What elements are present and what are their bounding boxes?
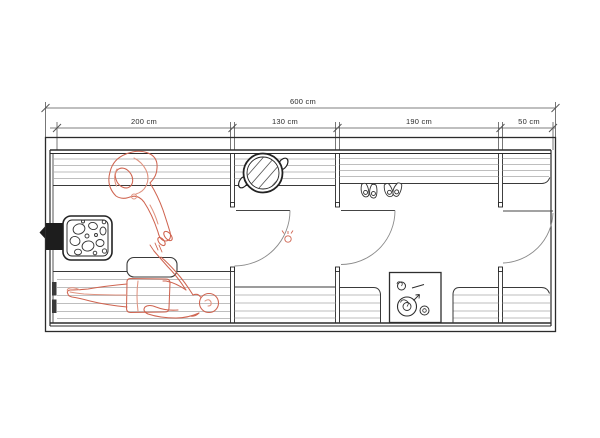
door-washroom [341, 211, 395, 265]
dimension-segment-130-label: 130 cm [272, 117, 298, 126]
top-bench-sauna [53, 159, 231, 186]
bottom-bench-washroom [235, 287, 336, 318]
door-vestibule [503, 211, 553, 263]
exterior-walls [46, 138, 556, 332]
dimension-total-label: 600 cm [290, 97, 316, 106]
dimension-segment-190-label: 190 cm [406, 117, 432, 126]
interior-doors [235, 211, 554, 267]
headrest [127, 258, 177, 278]
round-tub [236, 146, 290, 202]
dimension-lines [42, 102, 560, 150]
slipper-icon [383, 182, 394, 197]
bottom-bench-left-of-stove [340, 288, 381, 324]
slipper-icon [360, 183, 369, 198]
door-sauna [235, 211, 291, 267]
stove-cooktop [390, 273, 442, 323]
slipper-icon [369, 184, 378, 198]
bottom-bench-right-of-stove [453, 288, 499, 324]
floor-plan-drawing: 600 cm 200 cm 130 cm 190 cm 50 cm [0, 0, 600, 438]
dimension-segment-200-label: 200 cm [131, 117, 157, 126]
dimension-segment-50-label: 50 cm [518, 117, 540, 126]
chimney-outlet-icon [40, 227, 46, 239]
top-bench-restroom [340, 159, 499, 184]
bottom-bench-vestibule [503, 288, 551, 324]
floor-plan-canvas: 600 cm 200 cm 130 cm 190 cm 50 cm [0, 0, 600, 438]
dimension-labels: 600 cm 200 cm 130 cm 190 cm 50 cm [131, 97, 540, 126]
top-benches [53, 159, 550, 186]
top-bench-vestibule [503, 159, 551, 184]
hanging-slippers [360, 182, 403, 199]
